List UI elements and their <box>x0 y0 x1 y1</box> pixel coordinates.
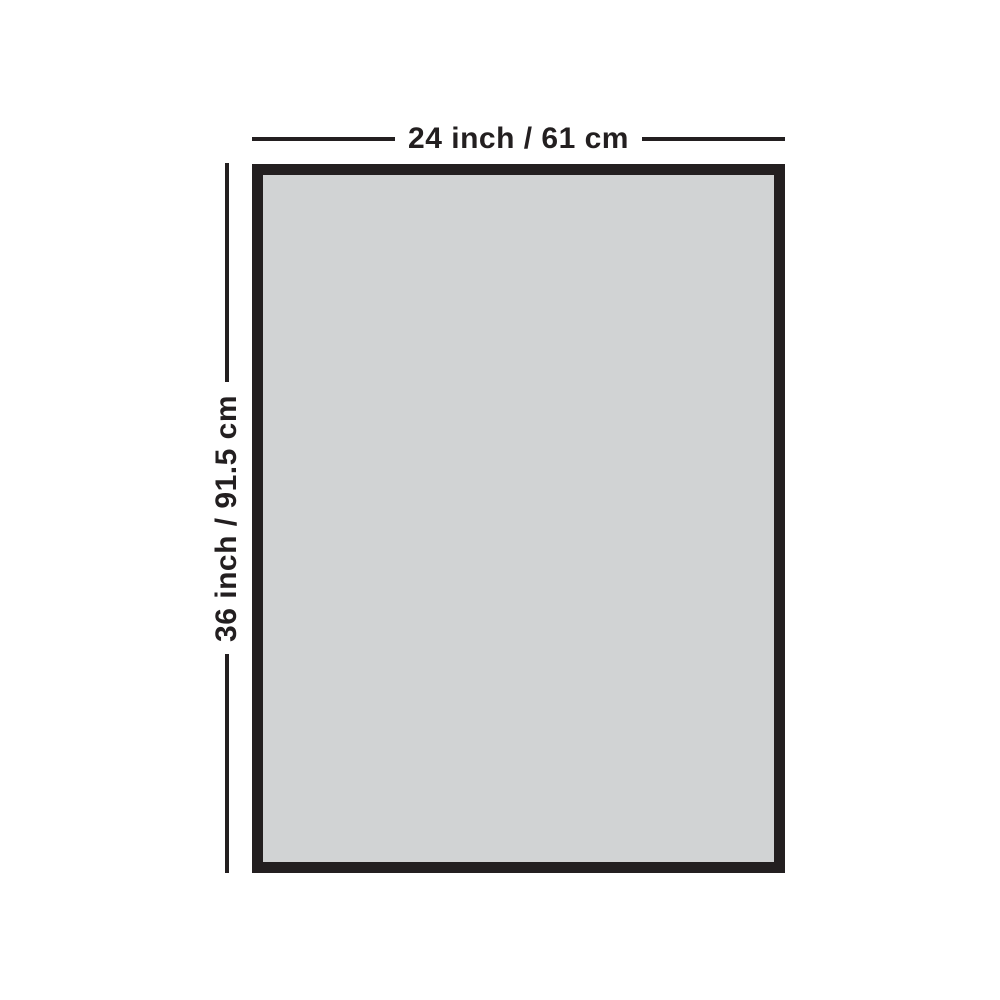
height-dimension-label: 36 inch / 91.5 cm <box>212 382 242 655</box>
width-dimension-label: 24 inch / 61 cm <box>395 124 642 154</box>
dimension-diagram: 24 inch / 61 cm 36 inch / 91.5 cm <box>0 0 1000 1000</box>
width-dimension: 24 inch / 61 cm <box>252 114 785 164</box>
width-dimension-line-left <box>252 137 395 141</box>
width-dimension-line-right <box>642 137 785 141</box>
board-frame <box>252 164 785 873</box>
board-surface <box>263 175 774 862</box>
height-dimension-line-top <box>225 163 229 382</box>
height-dimension-line-bottom <box>225 654 229 873</box>
height-dimension: 36 inch / 91.5 cm <box>202 163 252 873</box>
